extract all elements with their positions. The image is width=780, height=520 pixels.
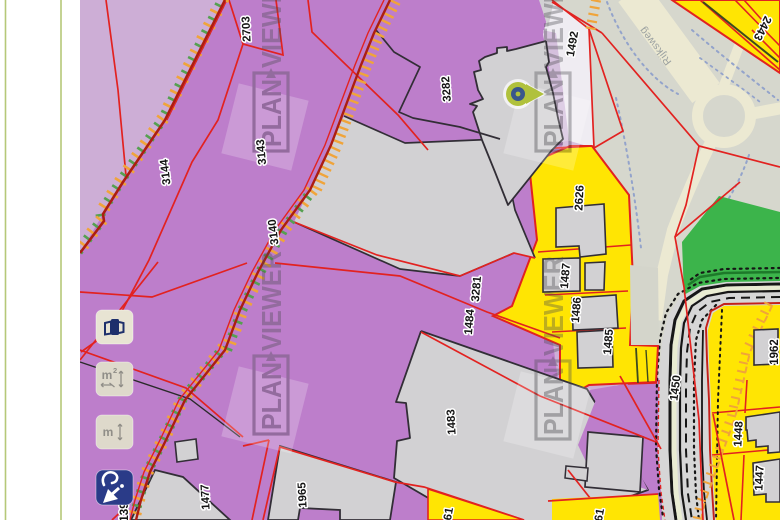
svg-text:1485: 1485 [602,328,616,355]
svg-text:1477: 1477 [199,484,212,510]
svg-text:PLAN: PLAN [538,79,569,147]
svg-text:1487: 1487 [559,263,573,290]
svg-text:3282: 3282 [440,76,454,102]
svg-text:VIEWER: VIEWER [538,0,569,68]
svg-text:1486: 1486 [570,297,584,324]
svg-text:PLAN: PLAN [538,367,569,435]
svg-text:1962: 1962 [769,339,780,365]
svg-text:2626: 2626 [573,185,586,211]
svg-text:1448: 1448 [732,420,745,447]
svg-text:3143: 3143 [255,139,269,166]
svg-text:m: m [102,368,113,382]
svg-text:PLAN: PLAN [256,362,287,430]
svg-text:1447: 1447 [753,465,766,491]
svg-text:3281: 3281 [470,275,484,302]
svg-text:1484: 1484 [463,308,477,335]
svg-text:m: m [103,425,114,439]
svg-text:VIEWER: VIEWER [256,0,287,68]
svg-text:PLAN: PLAN [256,79,287,147]
svg-text:2703: 2703 [240,16,253,42]
svg-text:2: 2 [113,366,117,375]
svg-text:1483: 1483 [445,409,458,435]
svg-text:VIEWER: VIEWER [256,251,287,351]
svg-text:1965: 1965 [296,481,309,508]
